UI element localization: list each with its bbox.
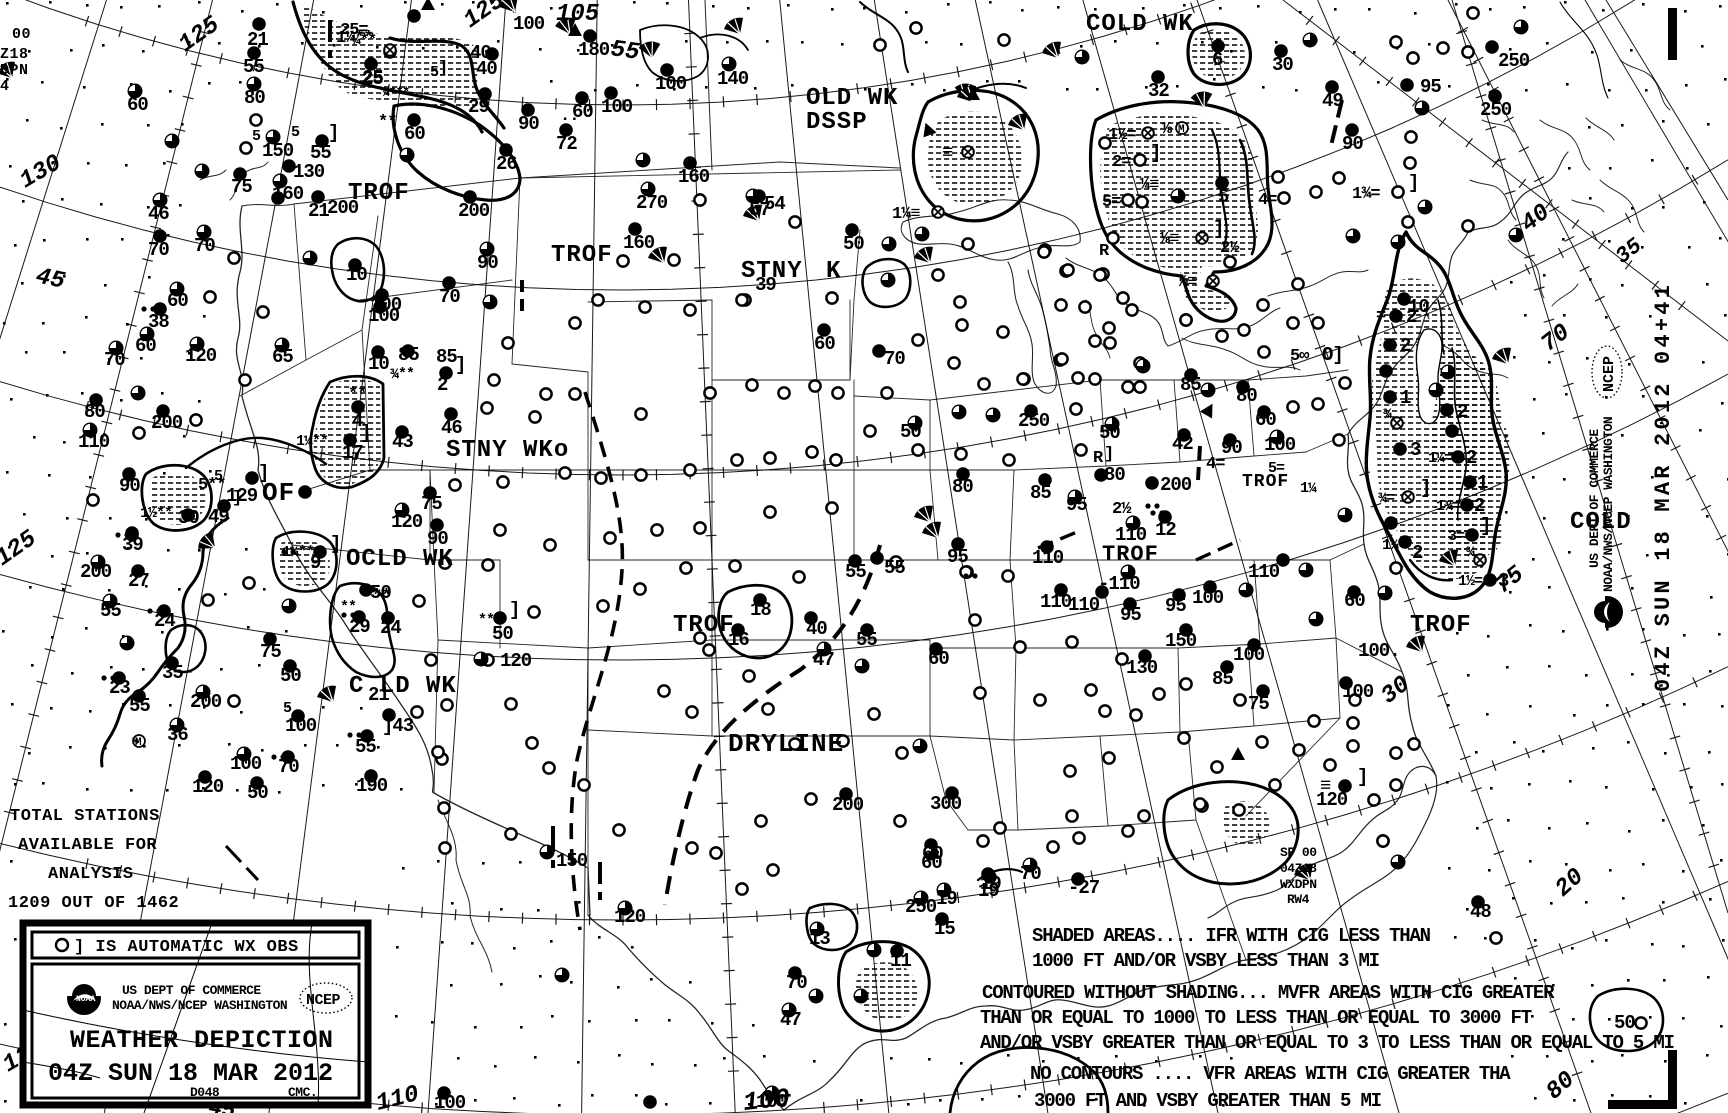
svg-text:STNY WKo: STNY WKo [446,437,569,464]
svg-text:1¾=: 1¾= [1436,498,1461,515]
svg-text:1½**: 1½** [140,505,172,522]
svg-text:42: 42 [1172,433,1193,455]
svg-text:00: 00 [12,26,31,43]
svg-text:15: 15 [934,918,955,940]
svg-text:55: 55 [884,557,905,579]
svg-text:30: 30 [1272,54,1293,76]
svg-text:TROF: TROF [1410,612,1472,639]
svg-text:60: 60 [1344,590,1365,612]
svg-text:55: 55 [609,36,642,67]
svg-text:TROF: TROF [551,242,613,269]
svg-text:100: 100 [1233,644,1265,666]
svg-text:5=: 5= [1102,193,1121,212]
svg-text:1¼: 1¼ [1300,480,1317,497]
svg-text:3=: 3= [1448,528,1465,545]
svg-text:250: 250 [1498,50,1530,72]
svg-text:4: 4 [0,78,10,95]
svg-text:100: 100 [1264,434,1296,456]
svg-text:50: 50 [1614,1012,1635,1034]
svg-text:70: 70 [439,286,460,308]
svg-text:12: 12 [1155,519,1176,541]
svg-text:US DEPT OF COMMERCE: US DEPT OF COMMERCE [1587,429,1602,568]
svg-text:2: 2 [1406,306,1417,328]
svg-text:NOAA/NWS/NCEP WASHINGTON: NOAA/NWS/NCEP WASHINGTON [112,998,287,1013]
svg-text:60: 60 [135,335,156,357]
svg-text:1209 OUT OF 1462: 1209 OUT OF 1462 [8,894,179,913]
svg-text:95: 95 [1120,604,1141,626]
svg-text:WXDPN: WXDPN [1280,877,1317,892]
svg-text:1000 FT AND/OR VSBY LESS THAN: 1000 FT AND/OR VSBY LESS THAN 3 MI [1032,950,1379,972]
svg-text:2: 2 [1400,335,1411,357]
svg-text:24: 24 [380,617,401,639]
svg-text:50: 50 [280,665,301,687]
svg-text:50: 50 [1099,422,1120,444]
svg-text:129: 129 [226,485,258,507]
svg-text:80: 80 [84,401,105,423]
svg-text:39: 39 [122,534,143,556]
svg-text:26: 26 [496,153,517,175]
svg-text:5: 5 [291,124,300,141]
svg-text:13: 13 [809,928,830,950]
svg-text:2: 2 [1412,542,1423,564]
svg-text:1¼=: 1¼= [1428,450,1453,467]
svg-text:US DEPT OF COMMERCE: US DEPT OF COMMERCE [122,983,261,998]
svg-text:70: 70 [194,235,215,257]
svg-text:OCLD WK: OCLD WK [346,546,454,573]
svg-text:**: ** [340,599,356,616]
svg-text:2: 2 [1474,495,1485,517]
svg-text:]: ] [1420,477,1430,499]
svg-text:90: 90 [477,252,498,274]
svg-text:70: 70 [1020,863,1041,885]
svg-text:85: 85 [1180,374,1201,396]
svg-text:29: 29 [349,616,370,638]
svg-text:130: 130 [293,161,325,183]
svg-text:55: 55 [100,600,121,622]
svg-text:3000 FT AND VSBY GREATER THAN: 3000 FT AND VSBY GREATER THAN 5 MI [1034,1090,1381,1112]
svg-text:04Z SUN 18 MAR 2012 04+41: 04Z SUN 18 MAR 2012 04+41 [1651,282,1676,692]
svg-text:⅛≡: ⅛≡ [1160,230,1179,249]
svg-text:70: 70 [786,972,807,994]
svg-text:43: 43 [392,431,413,453]
svg-text:1¾=: 1¾= [1352,185,1380,204]
svg-text:100: 100 [1192,587,1224,609]
svg-text:SF 00: SF 00 [1280,845,1317,860]
svg-text:75: 75 [421,493,442,515]
svg-text:NO CONTOURS .... VFR AREAS WIT: NO CONTOURS .... VFR AREAS WITH CIG GREA… [1030,1063,1511,1085]
svg-text:5: 5 [1218,186,1229,208]
svg-text:100: 100 [434,1092,466,1113]
svg-text:55: 55 [845,561,866,583]
svg-text:270: 270 [636,192,668,214]
svg-text:120: 120 [185,345,217,367]
svg-text:200: 200 [1160,474,1192,496]
svg-text:19: 19 [936,888,957,910]
svg-text:]: ] [1150,142,1160,164]
svg-text:2½: 2½ [1220,239,1240,258]
svg-text:TROF: TROF [673,612,735,639]
svg-text:3: 3 [1410,439,1421,461]
svg-text:25: 25 [362,68,383,90]
svg-text:TOTAL STATIONS: TOTAL STATIONS [10,807,160,826]
svg-text:5: 5 [283,700,292,717]
svg-text:DRYLINE: DRYLINE [728,729,844,759]
svg-text:≡: ≡ [942,142,953,164]
svg-text:O]: O] [1322,344,1343,366]
svg-text:]: ] [455,354,465,376]
svg-text:100: 100 [601,96,633,118]
svg-text:100: 100 [513,13,545,35]
svg-text:1¼≡: 1¼≡ [892,205,920,224]
svg-text:70: 70 [104,349,125,371]
svg-text:85: 85 [1030,482,1051,504]
svg-text:160: 160 [272,183,304,205]
svg-text:90: 90 [1342,133,1363,155]
svg-text:¾: ¾ [1466,544,1475,561]
svg-text:1: 1 [1400,387,1411,409]
svg-text:46: 46 [441,417,462,439]
svg-text:2½: 2½ [1112,500,1132,519]
svg-text:2: 2 [1466,447,1477,469]
svg-text:OF: OF [262,478,295,508]
svg-text:60: 60 [404,123,425,145]
svg-text:55: 55 [129,695,150,717]
svg-text:95: 95 [1420,76,1441,98]
svg-text:40: 40 [470,42,491,64]
svg-text:70: 70 [884,348,905,370]
svg-text:200: 200 [832,794,864,816]
svg-text:5: 5 [214,468,223,485]
svg-text:**: ** [348,385,366,404]
svg-text:04Z18: 04Z18 [1280,861,1317,876]
svg-text:Z18: Z18 [0,46,29,63]
svg-text:200: 200 [80,561,112,583]
svg-text:5∞: 5∞ [1290,347,1310,366]
svg-text:¾=: ¾= [1378,490,1395,507]
svg-text:120: 120 [1316,789,1348,811]
svg-text:60: 60 [1255,409,1276,431]
svg-text:50: 50 [900,421,921,443]
svg-text:OLD WK: OLD WK [806,85,898,112]
svg-text:1½=: 1½= [1108,126,1136,145]
svg-text:¼≡: ¼≡ [1140,176,1159,195]
svg-text:35: 35 [162,662,183,684]
svg-text:55: 55 [355,736,376,758]
svg-text:250: 250 [905,896,937,918]
svg-text:95: 95 [947,546,968,568]
svg-text:160: 160 [623,232,655,254]
svg-text:TROF: TROF [1102,542,1159,567]
svg-text:5: 5 [252,128,261,145]
svg-text:4=: 4= [1206,455,1225,474]
svg-text:80: 80 [952,476,973,498]
svg-text:80: 80 [1236,385,1257,407]
svg-text:55: 55 [243,56,264,78]
svg-text:150: 150 [556,850,588,872]
svg-text:2: 2 [437,374,448,396]
svg-text:NOAA/NWS/NCEP WASHINGTON: NOAA/NWS/NCEP WASHINGTON [1601,417,1616,592]
svg-text:100: 100 [655,73,687,95]
svg-text:17: 17 [342,442,363,464]
svg-text:150: 150 [262,140,294,162]
svg-text:]43: ]43 [382,715,414,737]
svg-text:] IS AUTOMATIC WX OBS: ] IS AUTOMATIC WX OBS [74,938,299,957]
svg-text:¼**: ¼** [352,32,376,49]
svg-text:2=: 2= [1112,153,1131,172]
svg-text:95: 95 [1066,494,1087,516]
svg-text:60: 60 [167,290,188,312]
svg-text:46: 46 [148,203,169,225]
svg-text:60: 60 [127,94,148,116]
svg-text:-110: -110 [1098,573,1140,595]
svg-text:TROF: TROF [1242,472,1289,492]
svg-text:100: 100 [1342,681,1374,703]
svg-text:29: 29 [468,96,489,118]
svg-text:11: 11 [890,950,911,972]
svg-text:1¼**: 1¼** [296,433,328,450]
svg-text:]: ] [330,533,340,555]
svg-text:130: 130 [1126,657,1158,679]
svg-text:200: 200 [458,200,490,222]
svg-text:65: 65 [272,346,293,368]
svg-text:2: 2 [1457,401,1468,423]
svg-text:150: 150 [1165,630,1197,652]
svg-text:80: 80 [244,87,265,109]
svg-text:160: 160 [678,166,710,188]
svg-text:54: 54 [764,193,785,215]
svg-text:90: 90 [119,475,140,497]
svg-text:]: ] [360,422,370,444]
svg-text:95: 95 [1165,595,1186,617]
svg-text:48: 48 [1470,901,1491,923]
svg-text:NCEP: NCEP [1601,356,1618,392]
svg-text:..: .. [560,107,578,126]
svg-text:200: 200 [151,412,183,434]
svg-text:]: ] [1357,766,1367,788]
svg-text:⅛≡: ⅛≡ [1178,273,1197,292]
svg-text:100: 100 [230,753,262,775]
svg-text:49: 49 [208,506,229,528]
svg-text:TROF: TROF [348,180,410,207]
svg-text:120: 120 [614,906,646,928]
svg-text:CONTOURED WITHOUT SHADING... M: CONTOURED WITHOUT SHADING... MVFR AREAS … [982,982,1555,1004]
svg-text:**: ** [378,113,396,132]
svg-text:55: 55 [310,142,331,164]
svg-text:D048: D048 [190,1085,220,1100]
svg-text:70: 70 [278,756,299,778]
svg-text:24: 24 [154,610,175,632]
svg-text:19: 19 [980,873,1001,895]
svg-text:18: 18 [750,599,771,621]
svg-text:90: 90 [518,113,539,135]
svg-text:THAN OR EQUAL TO 1000 TO LESS: THAN OR EQUAL TO 1000 TO LESS THAN OR EQ… [980,1007,1532,1029]
svg-text:1¼**: 1¼** [282,544,314,561]
svg-text:100.: 100. [1358,640,1400,662]
svg-text:**: ** [372,587,390,606]
svg-text:30: 30 [178,507,199,529]
svg-text:50: 50 [843,233,864,255]
svg-text:47: 47 [813,649,834,671]
svg-text:75: 75 [260,641,281,663]
svg-text:27: 27 [128,570,149,592]
svg-text:100: 100 [368,305,400,327]
svg-text:AVAILABLE FOR: AVAILABLE FOR [18,836,157,855]
svg-text:K: K [826,258,841,285]
svg-text:32: 32 [1148,80,1169,102]
svg-text:]: ] [1480,515,1490,537]
svg-text:WEATHER DEPICTION: WEATHER DEPICTION [70,1026,334,1055]
svg-text:NOAA: NOAA [76,995,95,1004]
svg-text:300: 300 [930,793,962,815]
svg-text:AND/OR VSBY GREATER THAN OR EQ: AND/OR VSBY GREATER THAN OR EQUAL TO 3 T… [980,1032,1674,1054]
svg-text:50: 50 [492,623,513,645]
svg-text:180: 180 [578,39,610,61]
svg-text:120: 120 [391,511,423,533]
svg-text:120: 120 [500,650,532,672]
svg-text:21: 21 [247,29,268,51]
svg-text:ANALYSIS: ANALYSIS [48,865,134,884]
svg-text:75: 75 [1248,693,1269,715]
svg-text:]: ] [232,489,241,508]
svg-text:85: 85 [1212,668,1233,690]
svg-text:SHADED AREAS.... IFR WITH CIG: SHADED AREAS.... IFR WITH CIG LESS THAN [1032,925,1431,947]
svg-text:¾: ¾ [1383,406,1392,423]
svg-text:70: 70 [148,239,169,261]
svg-text:=: = [1376,307,1386,326]
svg-text:100: 100 [285,715,317,737]
svg-text:¾**: ¾** [390,366,414,383]
svg-text:49: 49 [1322,90,1343,112]
svg-text:200: 200 [190,691,222,713]
svg-text:47: 47 [780,1009,801,1031]
svg-text:¼***: ¼*** [382,85,409,100]
svg-text:105: 105 [556,1,600,28]
svg-text:-27: -27 [1068,877,1100,899]
svg-text:]: ] [1408,172,1418,194]
svg-text:RW4: RW4 [1287,892,1310,907]
svg-text:110: 110 [1032,547,1064,569]
svg-text:]: ] [1213,218,1223,240]
svg-text:1½=: 1½= [1458,573,1483,590]
svg-text:]: ] [509,599,519,621]
svg-text:140: 140 [717,68,749,90]
svg-text:4=: 4= [1258,191,1277,210]
svg-text:85: 85 [398,344,419,366]
svg-text:250: 250 [1018,410,1050,432]
svg-text:72: 72 [556,133,577,155]
svg-text:]: ] [328,122,338,144]
svg-text:DPN: DPN [0,62,29,79]
svg-text:40: 40 [806,618,827,640]
svg-text:1: 1 [1477,472,1488,494]
svg-text:STNY: STNY [741,258,803,285]
svg-text:10: 10 [368,353,389,375]
svg-text:COLD WK: COLD WK [1086,11,1194,38]
svg-text:110: 110 [1068,594,1100,616]
svg-text:100: 100 [742,1083,792,1113]
svg-text:110: 110 [1248,561,1280,583]
svg-text:60: 60 [921,852,942,874]
svg-text:CMC.: CMC. [288,1085,317,1100]
svg-text:1¼: 1¼ [1382,537,1399,554]
svg-text:75: 75 [231,176,252,198]
svg-text:50: 50 [247,782,268,804]
svg-text:04Z SUN 18 MAR 2012: 04Z SUN 18 MAR 2012 [48,1059,333,1088]
svg-text:110: 110 [78,431,110,453]
svg-text:55: 55 [856,629,877,651]
svg-text:DSSP: DSSP [806,109,868,136]
svg-text:190: 190 [356,775,388,797]
svg-text:10: 10 [346,264,367,286]
svg-text:23: 23 [109,677,130,699]
svg-text:120: 120 [192,776,224,798]
svg-text:60: 60 [814,333,835,355]
svg-text:38: 38 [148,311,169,333]
svg-text:6: 6 [1212,49,1223,71]
svg-text:]: ] [438,59,447,78]
svg-text:80: 80 [1104,464,1125,486]
svg-text:250: 250 [1480,99,1512,121]
svg-text:60: 60 [928,648,949,670]
svg-text:]: ] [1104,445,1113,464]
svg-text:C LD WK: C LD WK [349,673,457,700]
svg-text:36: 36 [167,724,188,746]
